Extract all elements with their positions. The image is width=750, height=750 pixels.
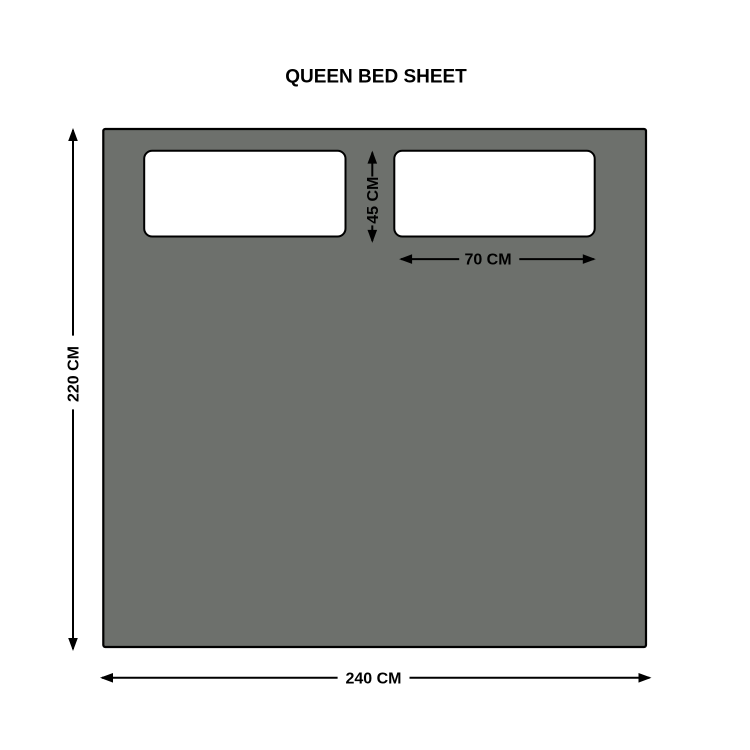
svg-text:QUEEN BED SHEET: QUEEN BED SHEET xyxy=(285,67,467,88)
svg-text:45 CM: 45 CM xyxy=(365,177,382,224)
svg-text:220 CM: 220 CM xyxy=(66,346,83,402)
svg-text:240 CM: 240 CM xyxy=(345,670,401,687)
svg-text:70 CM: 70 CM xyxy=(464,252,511,269)
